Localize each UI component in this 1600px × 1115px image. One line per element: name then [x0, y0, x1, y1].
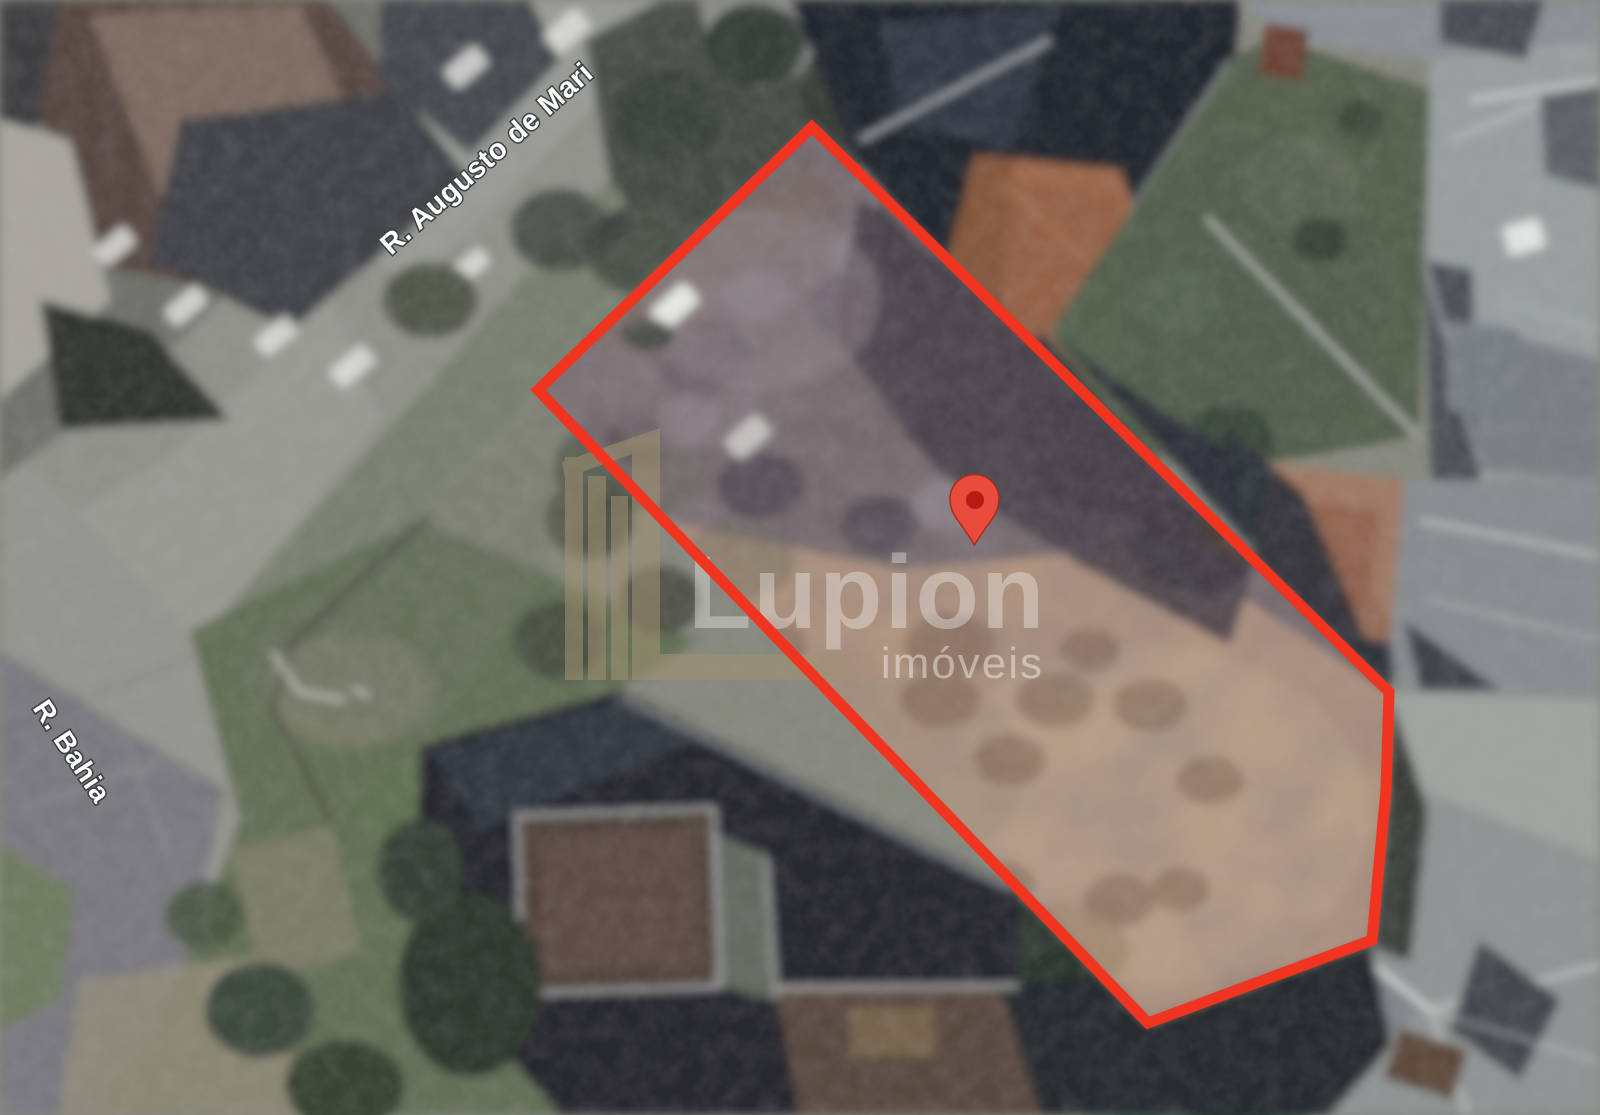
svg-text:imóveis: imóveis: [881, 639, 1044, 688]
svg-text:Lupion: Lupion: [688, 535, 1047, 651]
